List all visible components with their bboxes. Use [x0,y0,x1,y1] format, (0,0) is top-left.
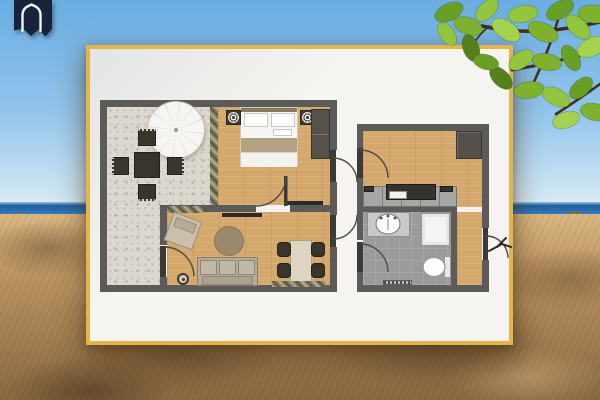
scene [0,0,600,400]
tree-branch [0,0,600,400]
leaves [432,0,600,132]
beach-twig [489,238,511,251]
